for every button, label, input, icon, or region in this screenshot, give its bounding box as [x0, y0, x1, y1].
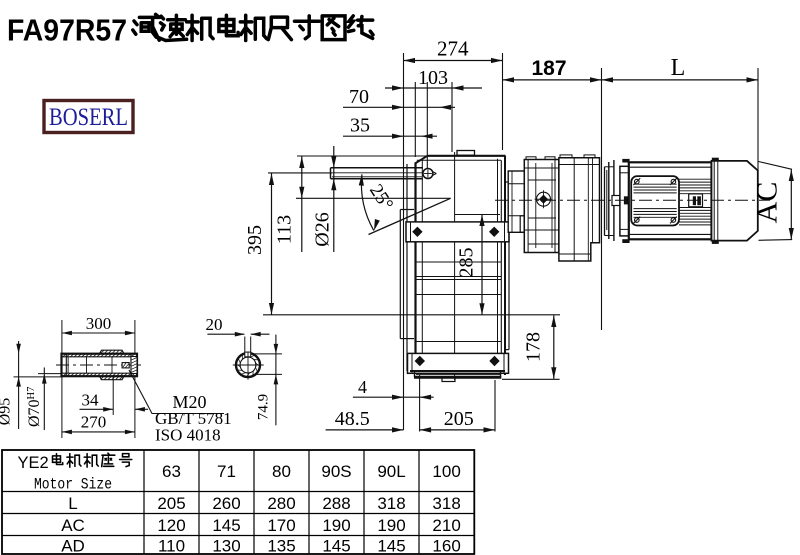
svg-text:103: 103	[418, 67, 448, 89]
svg-text:4: 4	[358, 377, 367, 397]
svg-text:145: 145	[322, 537, 350, 555]
svg-text:BOSERL: BOSERL	[49, 104, 128, 131]
svg-text:395: 395	[244, 225, 266, 255]
svg-text:113: 113	[274, 215, 296, 244]
svg-text:205: 205	[157, 494, 185, 513]
svg-text:318: 318	[377, 494, 405, 513]
svg-text:285: 285	[456, 248, 478, 278]
svg-text:74.9: 74.9	[256, 394, 272, 420]
svg-text:AC: AC	[61, 516, 85, 535]
svg-text:187: 187	[531, 57, 566, 80]
svg-text:AC: AC	[751, 182, 784, 224]
svg-text:110: 110	[158, 537, 185, 555]
svg-text:63: 63	[162, 462, 181, 481]
svg-text:80: 80	[272, 462, 291, 481]
svg-text:34: 34	[82, 391, 100, 410]
svg-text:AD: AD	[61, 537, 85, 555]
svg-text:178: 178	[523, 332, 545, 362]
svg-text:90S: 90S	[321, 462, 351, 481]
svg-text:318: 318	[432, 494, 460, 513]
svg-text:100: 100	[432, 462, 460, 481]
svg-text:145: 145	[212, 516, 240, 535]
svg-text:71: 71	[217, 462, 236, 481]
svg-text:90L: 90L	[377, 462, 405, 481]
svg-text:FA97R57: FA97R57	[7, 13, 127, 48]
svg-text:ISO 4018: ISO 4018	[155, 426, 221, 445]
svg-text:YE2: YE2	[18, 454, 49, 472]
svg-text:205: 205	[444, 408, 474, 430]
svg-text:288: 288	[322, 494, 350, 513]
svg-text:120: 120	[157, 516, 185, 535]
svg-text:260: 260	[212, 494, 240, 513]
svg-text:Ø26: Ø26	[312, 212, 334, 246]
svg-text:48.5: 48.5	[335, 408, 370, 430]
svg-text:170: 170	[267, 516, 295, 535]
svg-text:Motor Size: Motor Size	[34, 476, 112, 494]
svg-text:L: L	[68, 494, 77, 513]
svg-text:190: 190	[322, 516, 350, 535]
svg-text:Ø95: Ø95	[0, 398, 14, 426]
svg-text:145: 145	[377, 537, 405, 555]
svg-text:280: 280	[267, 494, 295, 513]
svg-text:L: L	[671, 55, 686, 81]
svg-text:135: 135	[267, 537, 295, 555]
svg-text:160: 160	[432, 537, 460, 555]
svg-text:274: 274	[437, 37, 469, 61]
svg-text:300: 300	[86, 314, 112, 333]
svg-text:210: 210	[432, 516, 460, 535]
svg-text:270: 270	[81, 413, 107, 432]
svg-text:20: 20	[206, 315, 223, 334]
svg-text:190: 190	[377, 516, 405, 535]
svg-text:70: 70	[349, 86, 369, 108]
svg-text:35: 35	[350, 115, 370, 137]
svg-text:130: 130	[212, 537, 240, 555]
